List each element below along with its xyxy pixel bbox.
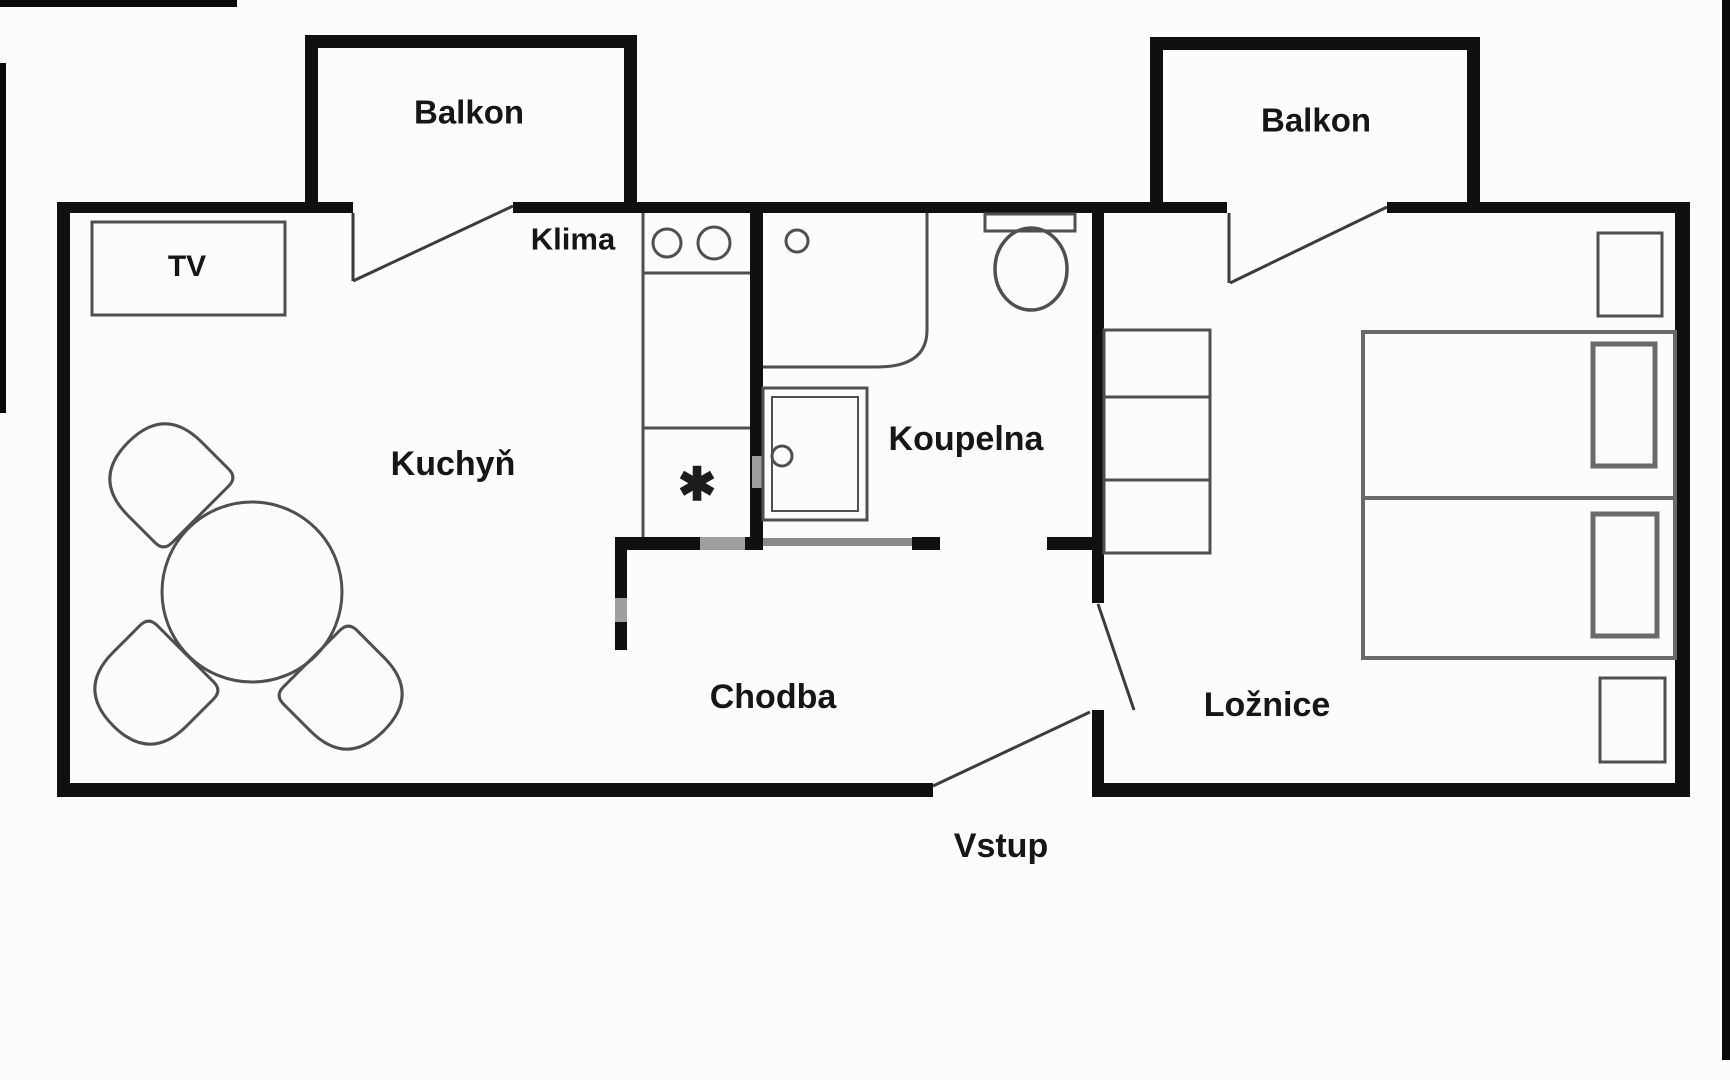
room-label-hallway: Chodba: [710, 680, 837, 714]
klima-label: Klima: [531, 224, 615, 255]
furniture-layer: [0, 0, 1730, 1080]
bedroom-door-leaf: [1098, 604, 1134, 710]
sink-drain: [786, 230, 808, 252]
stove-symbol: ✱: [678, 461, 717, 507]
room-label-bathroom: Koupelna: [889, 422, 1044, 456]
shower-tray-inner: [772, 397, 858, 511]
entry-door-leaf: [933, 712, 1090, 786]
chair: [91, 405, 237, 551]
shower-drain: [772, 446, 792, 466]
entrance-label: Vstup: [954, 829, 1048, 863]
shower-tray: [763, 388, 867, 520]
stove-burner: [653, 229, 681, 257]
balcony-left-door-leaf: [353, 206, 513, 281]
tv-label: TV: [168, 252, 206, 282]
nightstand: [1598, 233, 1662, 316]
nightstand: [1600, 678, 1665, 762]
room-label-kitchen: Kuchyň: [391, 447, 516, 481]
bed-1-pillow: [1593, 344, 1655, 466]
chair: [76, 617, 222, 763]
wardrobe: [1104, 330, 1210, 553]
chair: [275, 622, 421, 768]
bed-2-pillow: [1593, 514, 1657, 636]
bed-1: [1363, 332, 1675, 498]
balcony-right-door-leaf: [1230, 207, 1387, 283]
floor-plan: Balkon Balkon TV Klima Kuchyň Koupelna C…: [0, 0, 1730, 1080]
room-label-balcony-right: Balkon: [1261, 104, 1371, 137]
stove-burner: [698, 227, 730, 259]
toilet-bowl: [995, 228, 1067, 310]
room-label-balcony-left: Balkon: [414, 96, 524, 129]
room-label-bedroom: Ložnice: [1204, 688, 1331, 722]
